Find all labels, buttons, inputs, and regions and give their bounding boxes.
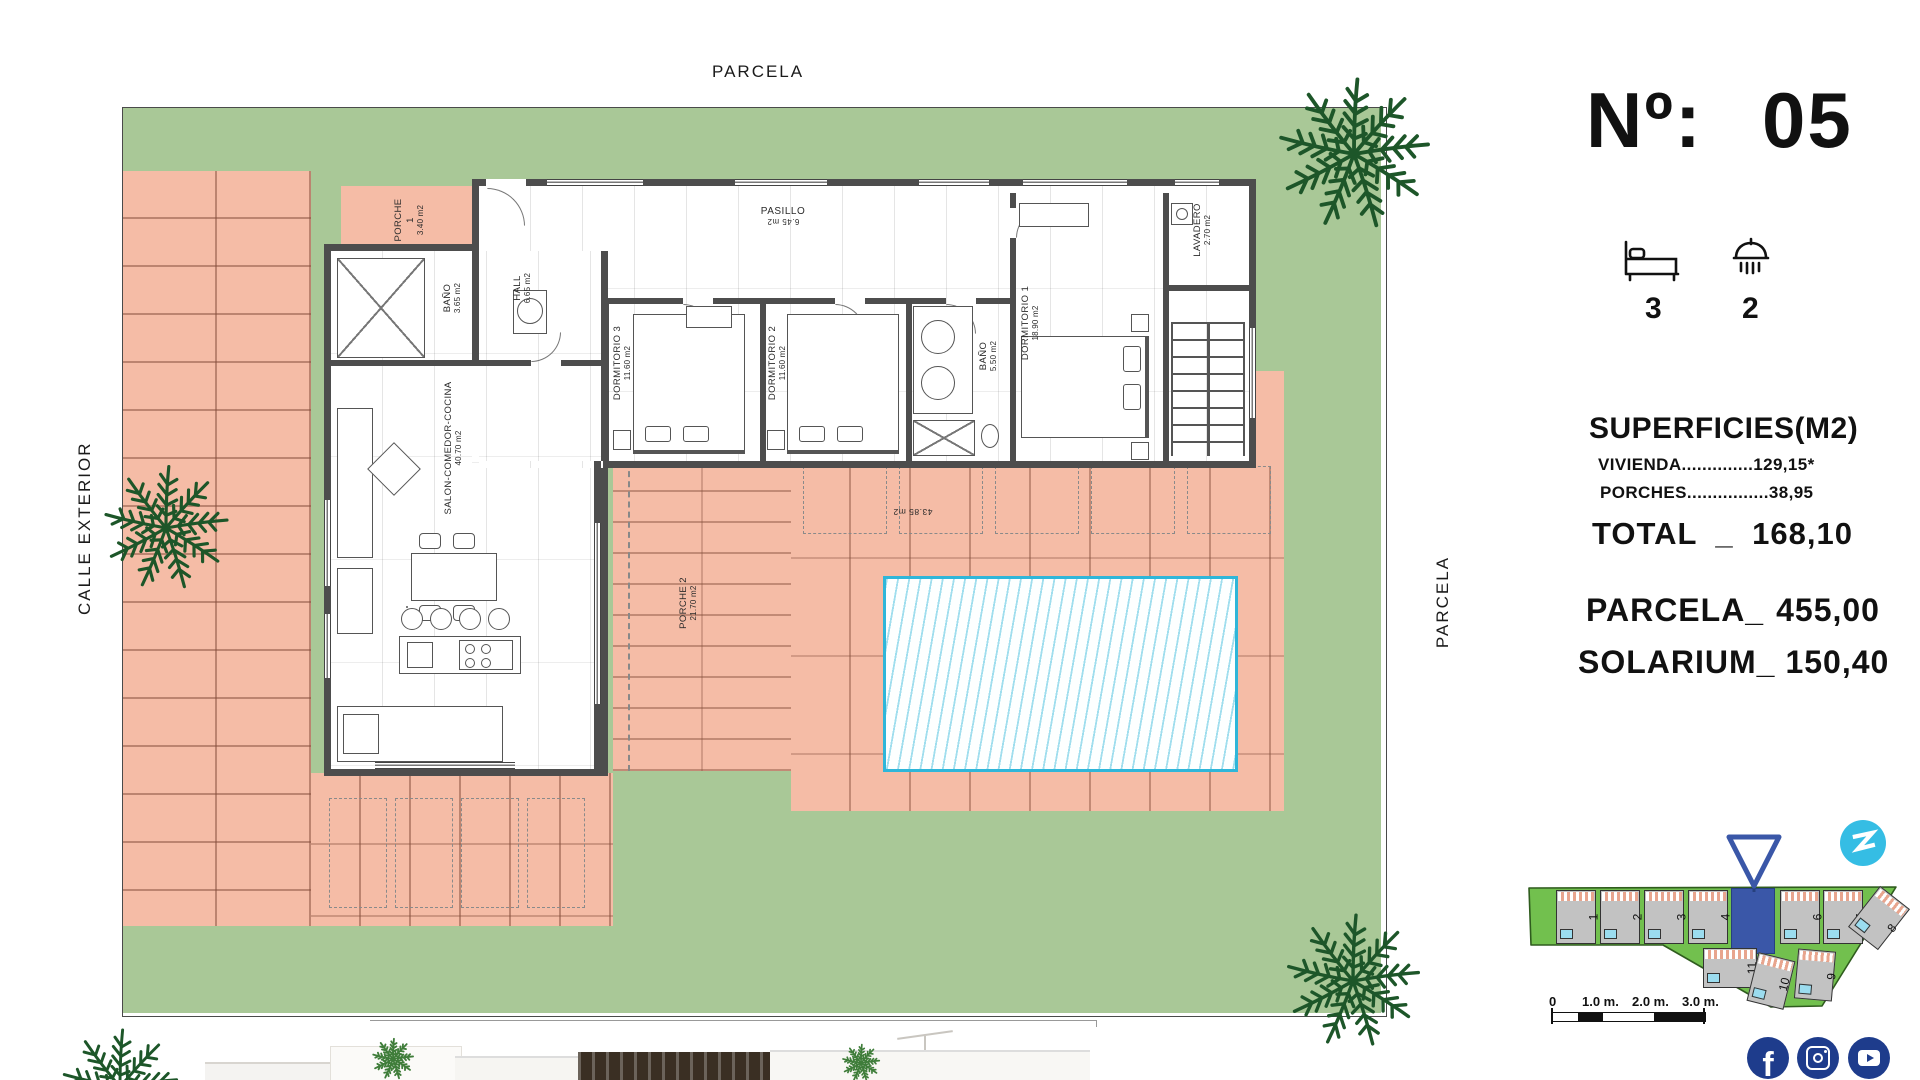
fridge [343,714,379,754]
wardrobe [1019,203,1089,227]
terrace-pergola-marks [1091,466,1175,534]
photo-roof-wall [770,1050,1090,1080]
bedrooms-count: 3 [1645,292,1662,326]
window [375,762,515,769]
wall [594,704,601,769]
lot-pool [1854,917,1870,933]
stool [488,608,510,630]
photo-plant [370,1036,416,1080]
shower-icon [1722,236,1780,284]
porche2-floor [613,461,791,771]
window [324,500,331,586]
siteplan-lot: 1 [1556,890,1596,944]
facebook-icon[interactable]: f [1747,1037,1789,1079]
lot-pool [1784,929,1797,939]
parcela-line: PARCELA_455,00 [1586,592,1880,629]
window [1175,179,1219,186]
window [1023,179,1127,186]
youtube-icon[interactable] [1848,1037,1890,1079]
lot-hatch [1825,892,1861,901]
wardrobe [686,306,732,328]
lot-pool [1604,929,1617,939]
toilet [981,424,999,448]
surfaces-title: SUPERFICIES(M2) [1589,412,1858,446]
siteplan-lot: 4 [1688,890,1728,944]
siteplan-lot-selected [1731,888,1775,954]
chair [453,533,475,549]
terrace-pergola-marks [803,466,887,534]
wall [865,298,906,304]
nightstand [767,430,785,450]
scale-label-3: 3.0 m. [1682,994,1719,1009]
wall [331,360,531,366]
sofa [337,408,373,558]
lot-number: 1 [1587,914,1601,921]
porch-edge-dashed-line [628,461,630,771]
pillow [799,426,825,442]
lot-hatch [1646,892,1682,901]
carport-pergola-marks [461,798,519,908]
wall [594,461,601,523]
palm-tree-icon [1269,69,1439,239]
plan-sheet: PARCELA PARCELA CALLE EXTERIOR PARCELA 4… [0,0,1920,1080]
wall [906,298,912,461]
opening [479,461,603,468]
wall [976,298,1010,304]
scale-label-0: 0 [1549,994,1556,1009]
staircase [1171,322,1245,456]
wall [760,298,766,461]
siteplan-lot: 11 [1703,948,1757,988]
scale-bar-tick [1551,1008,1553,1024]
unit-number-label: Nº: [1586,75,1703,166]
nightstand [613,430,631,450]
wall [603,298,609,461]
swimming-pool [883,576,1238,772]
lot-number: 9 [1824,973,1839,981]
wall [713,298,835,304]
lot-pool [1692,929,1705,939]
solarium-line: SOLARIUM_150,40 [1578,644,1889,681]
wall [561,360,601,366]
siteplan-lot: 2 [1600,890,1640,944]
stool [430,608,452,630]
lot-hatch [1690,892,1726,901]
lot-pool [1560,929,1573,939]
photo-frame-tick [1096,1020,1097,1027]
lot-pool [1752,987,1767,1000]
lot-hatch [1602,892,1638,901]
carport-pergola-marks [395,798,453,908]
burner [465,644,475,654]
pillow [645,426,671,442]
plot-boundary: 43.85 m2 [122,107,1387,1017]
opening [486,179,526,186]
parcela-label-top: PARCELA [712,62,804,82]
lot-number: 2 [1631,914,1645,921]
sofa [337,568,373,634]
lot-hatch [1705,950,1755,959]
pillow [1123,384,1141,410]
unit-number-value: 05 [1762,75,1853,166]
lot-pool [1798,984,1812,995]
lot-hatch [1782,892,1818,901]
window [547,179,643,186]
burner [481,658,491,668]
terrace-pergola-marks [995,466,1079,534]
window [919,179,989,186]
lot-pool [1707,973,1720,983]
scale-bar [1552,1012,1706,1022]
wall [1010,193,1016,208]
window [324,614,331,678]
wall [472,251,479,360]
nightstand [1131,442,1149,460]
lot-pool [1827,929,1840,939]
wall [912,298,946,304]
photo-frame-line [370,1020,1097,1021]
burner [481,644,491,654]
house-photo [185,1018,1100,1080]
lot-number: 10 [1776,976,1793,992]
stool [401,608,423,630]
dining-table [411,553,497,601]
shower [337,258,425,358]
wall [1010,238,1016,461]
wall [606,298,683,304]
lot-pool [1648,929,1661,939]
calle-exterior-label: CALLE EXTERIOR [75,465,95,615]
wall [1163,193,1169,461]
pillow [837,426,863,442]
selected-lot-flag-icon [1726,834,1782,894]
burner [465,658,475,668]
wall [1163,285,1249,291]
lot-hatch [1799,951,1834,963]
palm-tree-icon [96,458,236,598]
pillow [683,426,709,442]
scale-bar-tick [1703,1008,1705,1024]
parcela-label-right: PARCELA [1433,547,1453,657]
bathrooms-count: 2 [1742,292,1759,326]
scale-label-1: 1.0 m. [1582,994,1619,1009]
photo-plant [840,1042,882,1080]
shower [913,420,975,456]
window [594,523,601,704]
window [1249,328,1256,418]
chair [419,533,441,549]
stool [459,608,481,630]
bed-icon [1622,238,1684,284]
nightstand [1131,314,1149,332]
palm-tree-icon [55,1022,185,1080]
palm-tree-icon [1278,906,1428,1056]
sink-unit [407,642,433,668]
window [735,179,827,186]
washing-machine-drum [1176,208,1188,220]
carport-pergola-marks [329,798,387,908]
terrace-pergola-marks [899,466,983,534]
opening [479,244,608,251]
instagram-icon[interactable] [1797,1037,1839,1079]
photo-parasol-pole [924,1036,926,1050]
total-line: TOTAL _ 168,10 [1592,516,1853,552]
siteplan-lot: 9 [1794,948,1836,1001]
opening [472,360,479,468]
scale-label-2: 2.0 m. [1632,994,1669,1009]
siteplan-lot: 6 [1780,890,1820,944]
pillow [1123,346,1141,372]
washbasin [921,320,955,354]
vivienda-line: VIVIENDA..............129,15* [1598,455,1815,475]
carport-pergola-marks [527,798,585,908]
washbasin [921,366,955,400]
stair-rail [1207,322,1210,456]
photo-pergola [578,1052,770,1080]
siteplan-lot: 3 [1644,890,1684,944]
lot-number: 3 [1675,914,1689,921]
lot-hatch [1558,892,1594,901]
terrace-pergola-marks [1187,466,1271,534]
porches-line: PORCHES................38,95 [1600,483,1813,503]
